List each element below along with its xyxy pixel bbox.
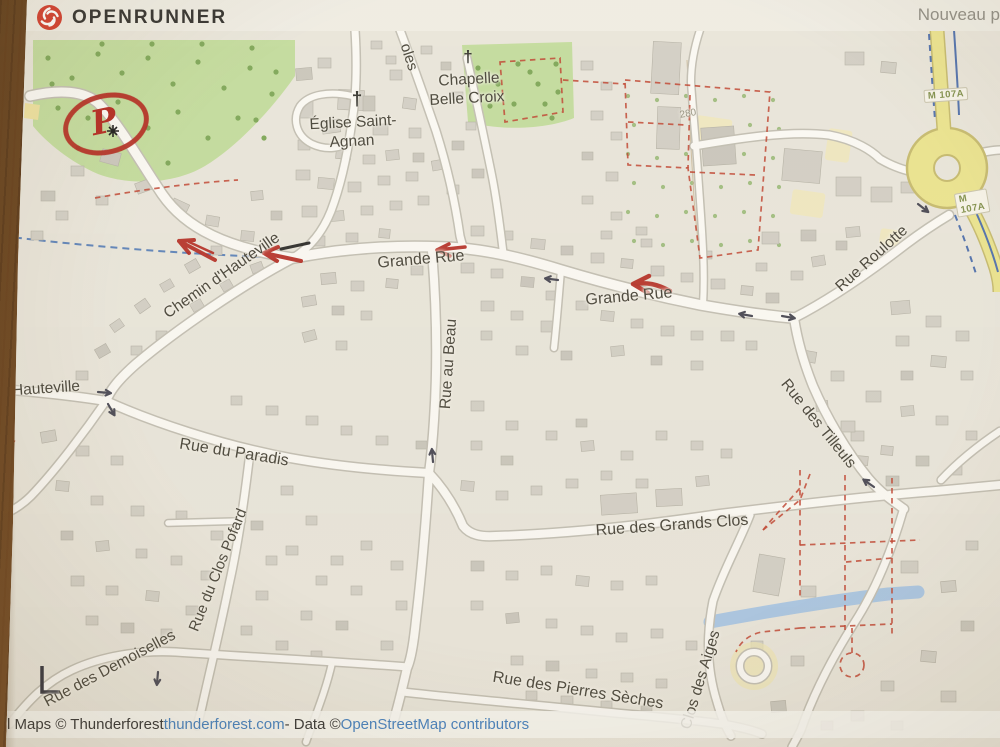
attribution-bar: l Maps © Thunderforest thunderforest.com… bbox=[0, 711, 1000, 738]
church-cross-icon: † bbox=[352, 89, 363, 111]
printed-paper: oles † Chapelle Belle Croix † Église Sai… bbox=[0, 0, 1000, 747]
page-header: OPENRUNNER Nouveau p bbox=[0, 0, 1000, 31]
openrunner-swirl-icon bbox=[36, 4, 63, 31]
poi-label-chapelle-1: Chapelle bbox=[438, 69, 500, 90]
map-canvas bbox=[0, 0, 1000, 747]
page-title-partial: Nouveau p bbox=[918, 5, 1000, 25]
poi-label-eglise-2: Agnan bbox=[329, 132, 375, 152]
attribution-prefix: l Maps © Thunderforest bbox=[7, 716, 164, 733]
thunderforest-link[interactable]: thunderforest.com bbox=[164, 716, 285, 733]
attribution-separator: - Data © bbox=[285, 716, 341, 733]
brand-name: OPENRUNNER bbox=[72, 7, 227, 29]
photographed-map-page: oles † Chapelle Belle Croix † Église Sai… bbox=[0, 0, 1000, 747]
brand-logo: OPENRUNNER bbox=[36, 4, 227, 31]
openstreetmap-contributors-link[interactable]: OpenStreetMap contributors bbox=[341, 716, 529, 733]
chapel-cross-icon: † bbox=[463, 47, 472, 67]
